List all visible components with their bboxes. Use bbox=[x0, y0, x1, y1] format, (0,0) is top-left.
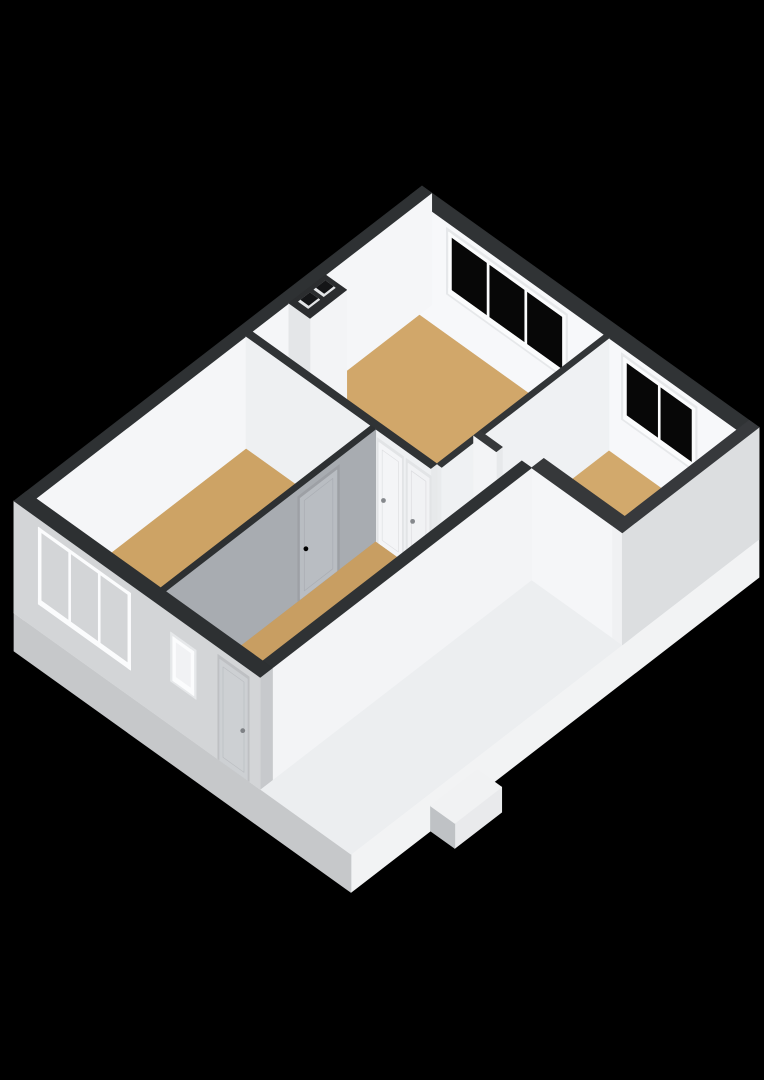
window-right-bedroom-mullion bbox=[658, 385, 660, 440]
door-entrance-panel bbox=[223, 667, 244, 773]
window-living-room-mullion bbox=[525, 290, 527, 345]
door-left-bedroom-handle-icon bbox=[304, 546, 309, 551]
floor-plan-3d-view bbox=[0, 0, 764, 1080]
window-right-bedroom-frame-right bbox=[692, 406, 695, 469]
window-right-bedroom-frame-left bbox=[624, 357, 627, 421]
door-living-room-2-handle-icon bbox=[410, 519, 415, 524]
door-living-room-1-handle-icon bbox=[381, 498, 386, 503]
window-left-bedroom-mullion bbox=[98, 573, 100, 643]
window-hallway-frame-left bbox=[173, 637, 176, 683]
wall-south-west-end bbox=[260, 668, 272, 789]
scene-canvas bbox=[0, 0, 764, 1080]
door-entrance-handle-icon bbox=[240, 728, 245, 733]
window-living-room-mullion bbox=[487, 263, 489, 318]
window-hallway-frame-right bbox=[191, 650, 194, 696]
window-left-bedroom-frame-right bbox=[128, 591, 131, 670]
window-left-bedroom-frame-left bbox=[38, 527, 41, 606]
window-living-room-frame-left bbox=[449, 232, 452, 295]
wall-south-east-end bbox=[613, 526, 623, 645]
window-left-bedroom-mullion bbox=[69, 552, 71, 622]
